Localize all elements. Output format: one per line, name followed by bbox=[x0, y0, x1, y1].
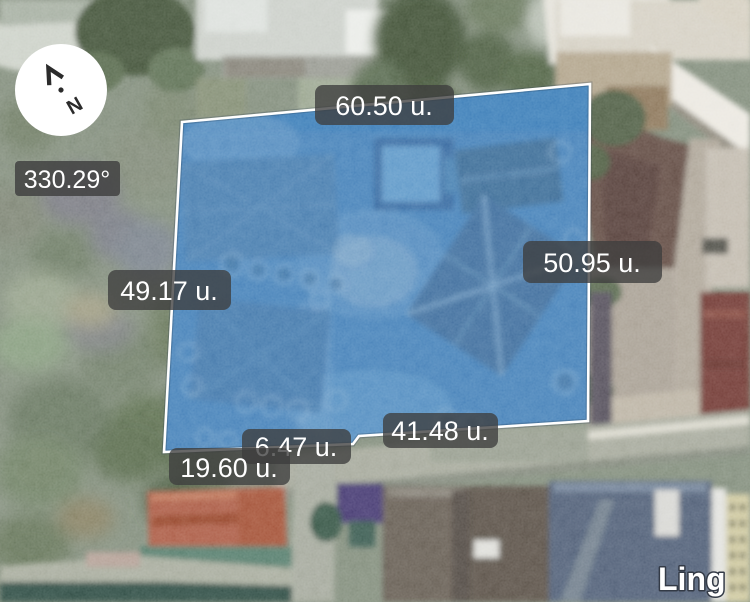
svg-text:49.17 u.: 49.17 u. bbox=[120, 276, 218, 306]
svg-text:50.95 u.: 50.95 u. bbox=[543, 248, 641, 278]
svg-text:330.29°: 330.29° bbox=[24, 166, 110, 194]
svg-text:41.48 u.: 41.48 u. bbox=[391, 416, 489, 446]
svg-text:Ling: Ling bbox=[658, 561, 726, 597]
svg-text:60.50 u.: 60.50 u. bbox=[335, 91, 433, 121]
svg-text:19.60 u.: 19.60 u. bbox=[180, 453, 278, 483]
